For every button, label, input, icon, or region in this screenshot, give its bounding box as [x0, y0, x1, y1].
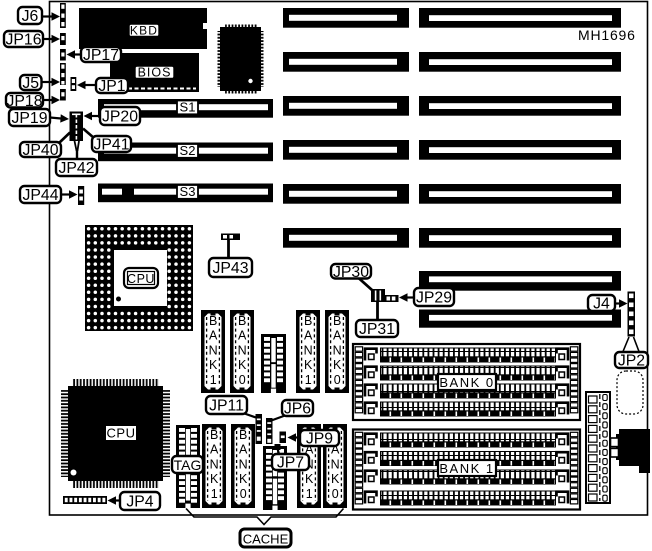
svg-text:JP41: JP41	[93, 137, 129, 154]
svg-text:B: B	[239, 428, 247, 442]
svg-text:A: A	[238, 329, 247, 343]
svg-text:0: 0	[240, 487, 247, 501]
svg-text:JP16: JP16	[5, 32, 41, 49]
svg-text:B: B	[238, 314, 246, 328]
svg-text:JP20: JP20	[102, 109, 138, 126]
svg-text:JP1: JP1	[98, 78, 125, 95]
svg-text:JP43: JP43	[212, 260, 248, 277]
svg-text:N: N	[331, 457, 340, 471]
svg-text:J6: J6	[22, 8, 39, 25]
svg-text:S1: S1	[180, 100, 196, 115]
svg-text:CPU: CPU	[107, 426, 136, 441]
svg-text:K: K	[210, 472, 219, 486]
svg-text:N: N	[209, 343, 218, 357]
svg-text:A: A	[304, 329, 313, 343]
svg-text:KBD: KBD	[130, 24, 158, 38]
svg-text:JP42: JP42	[58, 160, 94, 177]
svg-text:S2: S2	[180, 143, 196, 158]
svg-text:JP40: JP40	[22, 142, 58, 159]
svg-text:JP7: JP7	[277, 455, 304, 472]
svg-text:MH1696: MH1696	[578, 27, 636, 43]
svg-text:JP31: JP31	[359, 321, 395, 338]
svg-text:N: N	[333, 343, 342, 357]
svg-text:B: B	[304, 314, 312, 328]
svg-text:JP18: JP18	[6, 93, 42, 110]
svg-text:K: K	[304, 358, 313, 372]
svg-text:S3: S3	[180, 184, 196, 199]
svg-text:0: 0	[332, 487, 339, 501]
svg-text:K: K	[305, 472, 314, 486]
svg-text:K: K	[239, 472, 248, 486]
svg-text:0: 0	[239, 373, 246, 387]
svg-text:1: 1	[210, 373, 217, 387]
svg-text:J4: J4	[593, 296, 610, 313]
svg-text:A: A	[210, 443, 219, 457]
svg-text:K: K	[333, 358, 342, 372]
svg-text:JP19: JP19	[11, 110, 47, 127]
svg-text:J5: J5	[22, 75, 39, 92]
svg-text:CPU: CPU	[127, 272, 155, 286]
svg-text:B: B	[333, 314, 341, 328]
svg-text:N: N	[210, 457, 219, 471]
svg-text:0: 0	[334, 373, 341, 387]
svg-text:BANK 0: BANK 0	[439, 375, 494, 390]
svg-text:JP4: JP4	[126, 494, 153, 511]
svg-text:JP17: JP17	[83, 47, 119, 64]
svg-text:JP2: JP2	[618, 353, 645, 370]
svg-text:1: 1	[211, 487, 218, 501]
svg-text:A: A	[209, 329, 218, 343]
svg-text:JP29: JP29	[416, 290, 452, 307]
svg-text:K: K	[238, 358, 247, 372]
svg-text:A: A	[333, 329, 342, 343]
svg-text:B: B	[210, 428, 218, 442]
svg-text:A: A	[239, 443, 248, 457]
svg-text:JP6: JP6	[284, 401, 311, 418]
svg-text:BANK 1: BANK 1	[439, 461, 494, 476]
svg-text:N: N	[238, 343, 247, 357]
svg-text:N: N	[304, 343, 313, 357]
svg-text:1: 1	[306, 487, 313, 501]
svg-text:K: K	[331, 472, 340, 486]
svg-text:B: B	[209, 314, 217, 328]
svg-text:1: 1	[305, 373, 312, 387]
svg-text:JP30: JP30	[333, 264, 369, 281]
svg-text:CACHE: CACHE	[243, 532, 289, 547]
svg-text:JP11: JP11	[209, 398, 244, 415]
svg-text:JP9: JP9	[306, 431, 333, 448]
svg-text:K: K	[209, 358, 218, 372]
svg-text:BIOS: BIOS	[138, 66, 172, 80]
svg-text:JP44: JP44	[22, 187, 58, 204]
svg-text:TAG: TAG	[174, 457, 202, 473]
svg-text:N: N	[239, 457, 248, 471]
